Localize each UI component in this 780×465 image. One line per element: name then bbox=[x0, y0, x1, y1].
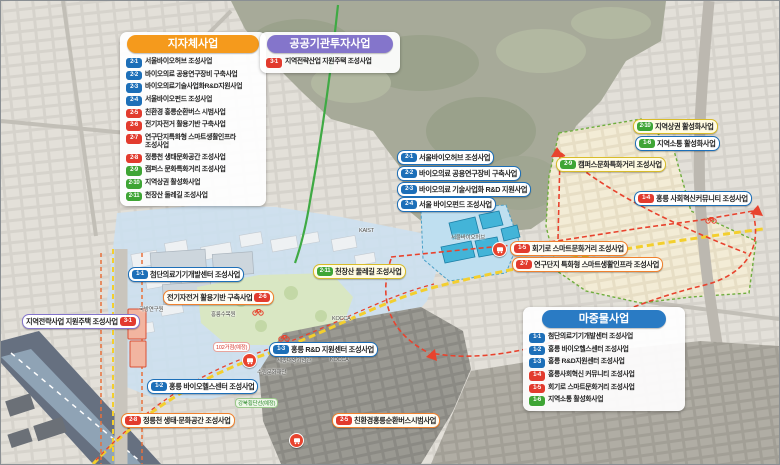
map-label-1-5: 1-5 회기로 스마트문화거리 조성사업 bbox=[510, 241, 628, 256]
legend-item-label: 전기자전거 활용기반 구축사업 bbox=[145, 121, 226, 129]
legend-item-1-3: 1-3 홍릉 R&D지원센터 조성사업 bbox=[529, 358, 680, 368]
project-badge: 3-1 bbox=[120, 317, 136, 327]
map-label-text: 홍릉 바이오헬스센터 조성사업 bbox=[169, 382, 254, 392]
legend-item-2-1: 2-1 서울바이오허브 조성사업 bbox=[126, 58, 261, 68]
project-badge: 2-8 bbox=[126, 154, 142, 164]
legend-item-label: 회기로 스마트문화거리 조성사업 bbox=[548, 384, 635, 392]
legend-item-2-11: 2-11 천장산 둘레길 조성사업 bbox=[126, 192, 261, 202]
bus-stop-icon bbox=[242, 353, 257, 368]
map-label-2-2: 2-2 바이오의료 공용연구장비 구축사업 bbox=[397, 166, 521, 181]
map-text-rail-plan: 강북횡단선(예정) bbox=[235, 398, 278, 408]
legend-item-3-1: 3-1 지역전략산업 지원주택 조성사업 bbox=[266, 58, 395, 68]
map-label-text: 정릉천 생태·문화공간 조성사업 bbox=[143, 416, 231, 426]
project-badge: 2-5 bbox=[336, 416, 352, 426]
legend-public-title: 공공기관투자사업 bbox=[267, 35, 393, 53]
legend-item-2-2: 2-2 바이오의료 공용연구장비 구축사업 bbox=[126, 71, 261, 81]
legend-item-2-10: 2-10 지역상권 활성화사업 bbox=[126, 179, 261, 189]
legend-item-label: 서울바이오허브 조성사업 bbox=[145, 58, 212, 66]
legend-item-label: 친환경 홍릉순환버스 시범사업 bbox=[145, 109, 226, 117]
map-label-2-9: 2-9 캠퍼스문화특화거리 조성사업 bbox=[556, 157, 666, 172]
map-label-text: 서울 바이오펀드 조성사업 bbox=[419, 200, 492, 210]
legend-local-panel: 지자체사업 2-1 서울바이오허브 조성사업 2-2 바이오의료 공용연구장비 … bbox=[120, 32, 266, 206]
project-map-screenshot: 지자체사업 2-1 서울바이오허브 조성사업 2-2 바이오의료 공용연구장비 … bbox=[0, 0, 780, 465]
project-badge: 2-3 bbox=[401, 185, 417, 195]
project-badge: 2-4 bbox=[126, 96, 142, 106]
map-label-text: 회기로 스마트문화거리 조성사업 bbox=[532, 244, 624, 254]
map-label-text: 바이오의료 공용연구장비 구축사업 bbox=[419, 169, 517, 179]
legend-public-panel: 공공기관투자사업 3-1 지역전략산업 지원주택 조성사업 bbox=[260, 32, 400, 73]
project-badge: 2-9 bbox=[560, 160, 576, 170]
map-label-text: 전기자전거 활용기반 구축사업 bbox=[167, 293, 252, 303]
map-label-2-4: 2-4 서울 바이오펀드 조성사업 bbox=[397, 197, 496, 212]
map-text-kaist: KAIST bbox=[359, 228, 374, 234]
legend-item-label: 홍릉사회혁신 커뮤니티 조성사업 bbox=[548, 371, 635, 379]
map-label-1-1: 1-1 첨단의료기기개발센터 조성사업 bbox=[128, 267, 244, 282]
legend-seed-panel: 마중물사업 1-1 첨단의료기기개발센터 조성사업 1-2 홍릉 바이오헬스센터… bbox=[523, 307, 685, 411]
legend-item-2-8: 2-8 정릉천 생태문화공간 조성사업 bbox=[126, 154, 261, 164]
map-text-kocca-2: KOCCA bbox=[330, 357, 349, 363]
project-badge: 2-11 bbox=[126, 192, 142, 202]
project-badge: 2-3 bbox=[126, 83, 142, 93]
legend-item-label: 홍릉 R&D지원센터 조성사업 bbox=[548, 358, 625, 366]
legend-item-label: 지역소통 활성화사업 bbox=[548, 396, 603, 404]
map-label-1-4: 1-4 홍릉 사회혁신커뮤니티 조성사업 bbox=[634, 191, 752, 206]
legend-item-label: 정릉천 생태문화공간 조성사업 bbox=[145, 154, 226, 162]
map-label-text: 천장산 둘레길 조성사업 bbox=[335, 267, 402, 277]
map-label-text: 지역상권 활성화사업 bbox=[655, 122, 714, 132]
map-label-1-3: 1-3 홍릉 R&D 지원센터 조성사업 bbox=[269, 342, 378, 357]
map-text-sejong-hall: 세종대왕기념관 bbox=[277, 356, 311, 364]
legend-item-2-6: 2-6 전기자전거 활용기반 구축사업 bbox=[126, 121, 261, 131]
map-label-text: 첨단의료기기개발센터 조성사업 bbox=[150, 270, 240, 280]
legend-item-1-6: 1-6 지역소통 활성화사업 bbox=[529, 396, 680, 406]
legend-item-1-1: 1-1 첨단의료기기개발센터 조성사업 bbox=[529, 333, 680, 343]
legend-item-2-9: 2-9 캠퍼스 문화특화거리 조성사업 bbox=[126, 166, 261, 176]
project-badge: 2-7 bbox=[516, 260, 532, 270]
project-badge: 2-1 bbox=[401, 153, 417, 163]
project-badge: 2-1 bbox=[126, 58, 142, 68]
bus-stop-icon bbox=[289, 433, 304, 448]
map-label-text: 홍릉 사회혁신커뮤니티 조성사업 bbox=[656, 194, 748, 204]
legend-item-label: 천장산 둘레길 조성사업 bbox=[145, 192, 208, 200]
project-badge: 1-4 bbox=[638, 194, 654, 204]
project-badge: 2-2 bbox=[126, 71, 142, 81]
bio-hub-buildings bbox=[421, 205, 520, 281]
project-badge: 2-2 bbox=[401, 169, 417, 179]
project-badge: 1-2 bbox=[529, 346, 545, 356]
project-badge: 1-3 bbox=[273, 345, 289, 355]
project-badge: 2-8 bbox=[125, 416, 141, 426]
map-label-3-1: 지역전략사업 지원주택 조성사업 3-1 bbox=[22, 314, 140, 329]
legend-item-label: 홍릉 바이오헬스센터 조성사업 bbox=[548, 346, 629, 354]
project-badge: 2-5 bbox=[126, 109, 142, 119]
project-badge: 1-2 bbox=[151, 382, 167, 392]
map-label-text: 지역전략사업 지원주택 조성사업 bbox=[26, 317, 118, 327]
project-badge: 1-1 bbox=[529, 333, 545, 343]
legend-item-label: 바이오의료 공용연구장비 구축사업 bbox=[145, 71, 237, 79]
project-badge: 2-10 bbox=[637, 122, 653, 132]
legend-item-2-3: 2-3 바이오의료기술사업화R&D지원사업 bbox=[126, 83, 261, 93]
project-badge: 2-4 bbox=[401, 200, 417, 210]
project-badge: 1-5 bbox=[529, 384, 545, 394]
project-badge: 2-6 bbox=[254, 293, 270, 303]
map-label-text: 바이오의료 기술사업화 R&D 지원사업 bbox=[419, 185, 527, 195]
bus-stop-icon bbox=[492, 242, 507, 257]
legend-item-label: 지역전략산업 지원주택 조성사업 bbox=[285, 58, 372, 66]
project-badge: 1-4 bbox=[529, 371, 545, 381]
map-label-2-1: 2-1 서울바이오허브 조성사업 bbox=[397, 150, 494, 165]
legend-item-2-4: 2-4 서울바이오펀드 조성사업 bbox=[126, 96, 261, 106]
legend-item-label: 첨단의료기기개발센터 조성사업 bbox=[548, 333, 633, 341]
project-badge: 1-3 bbox=[529, 358, 545, 368]
legend-item-label: 연구단지특화형 스마트생활인프라 조성사업 bbox=[145, 134, 241, 150]
map-label-2-5: 2-5 친환경홍릉순환버스시범사업 bbox=[332, 413, 440, 428]
map-text-arboretum: 홍릉수목원 bbox=[211, 310, 235, 318]
legend-item-2-5: 2-5 친환경 홍릉순환버스 시범사업 bbox=[126, 109, 261, 119]
map-label-2-6: 전기자전거 활용기반 구축사업 2-6 bbox=[163, 290, 274, 305]
map-label-2-10: 2-10 지역상권 활성화사업 bbox=[633, 119, 718, 134]
map-text-bus-hub: 102거점(예정) bbox=[213, 342, 250, 352]
legend-item-2-7: 2-7 연구단지특화형 스마트생활인프라 조성사업 bbox=[126, 134, 261, 150]
legend-local-title: 지자체사업 bbox=[127, 35, 259, 53]
project-badge: 1-6 bbox=[529, 396, 545, 406]
legend-item-1-4: 1-4 홍릉사회혁신 커뮤니티 조성사업 bbox=[529, 371, 680, 381]
project-badge: 1-6 bbox=[639, 139, 655, 149]
project-badge: 2-10 bbox=[126, 179, 142, 189]
project-badge: 2-6 bbox=[126, 121, 142, 131]
map-label-2-8: 2-8 정릉천 생태·문화공간 조성사업 bbox=[121, 413, 235, 428]
map-text-kocca-1: KOCCA bbox=[332, 316, 351, 322]
project-badge: 2-7 bbox=[126, 134, 142, 144]
map-text-biohub: 서울바이오허브 bbox=[451, 233, 485, 241]
map-label-2-3: 2-3 바이오의료 기술사업화 R&D 지원사업 bbox=[397, 182, 531, 197]
legend-item-label: 바이오의료기술사업화R&D지원사업 bbox=[145, 83, 242, 91]
map-label-text: 서울바이오허브 조성사업 bbox=[419, 153, 490, 163]
legend-seed-title: 마중물사업 bbox=[542, 310, 666, 328]
legend-item-1-5: 1-5 회기로 스마트문화거리 조성사업 bbox=[529, 384, 680, 394]
map-label-text: 홍릉 R&D 지원센터 조성사업 bbox=[291, 345, 374, 355]
legend-item-label: 서울바이오펀드 조성사업 bbox=[145, 96, 212, 104]
map-label-1-2: 1-2 홍릉 바이오헬스센터 조성사업 bbox=[147, 379, 258, 394]
map-label-text: 캠퍼스문화특화거리 조성사업 bbox=[578, 160, 662, 170]
legend-item-label: 캠퍼스 문화특화거리 조성사업 bbox=[145, 166, 226, 174]
map-text-surim: 수림문화재단 bbox=[257, 368, 286, 376]
map-label-text: 지역소통 활성화사업 bbox=[657, 139, 716, 149]
map-label-1-6: 1-6 지역소통 활성화사업 bbox=[635, 136, 720, 151]
project-badge: 2-9 bbox=[126, 166, 142, 176]
map-label-2-7: 2-7 연구단지 특화형 스마트생활인프라 조성사업 bbox=[512, 257, 663, 272]
project-badge: 1-5 bbox=[514, 244, 530, 254]
map-text-kida: 국방연구원 bbox=[139, 305, 163, 313]
map-label-text: 친환경홍릉순환버스시범사업 bbox=[354, 416, 436, 426]
legend-item-1-2: 1-2 홍릉 바이오헬스센터 조성사업 bbox=[529, 346, 680, 356]
map-label-text: 연구단지 특화형 스마트생활인프라 조성사업 bbox=[534, 260, 659, 270]
legend-item-label: 지역상권 활성화사업 bbox=[145, 179, 200, 187]
bike-share-icon bbox=[252, 303, 264, 321]
project-badge: 3-1 bbox=[266, 58, 282, 68]
project-badge: 2-11 bbox=[317, 267, 333, 277]
map-label-2-11: 2-11 천장산 둘레길 조성사업 bbox=[313, 264, 406, 279]
bike-share-icon bbox=[705, 211, 717, 229]
project-badge: 1-1 bbox=[132, 270, 148, 280]
